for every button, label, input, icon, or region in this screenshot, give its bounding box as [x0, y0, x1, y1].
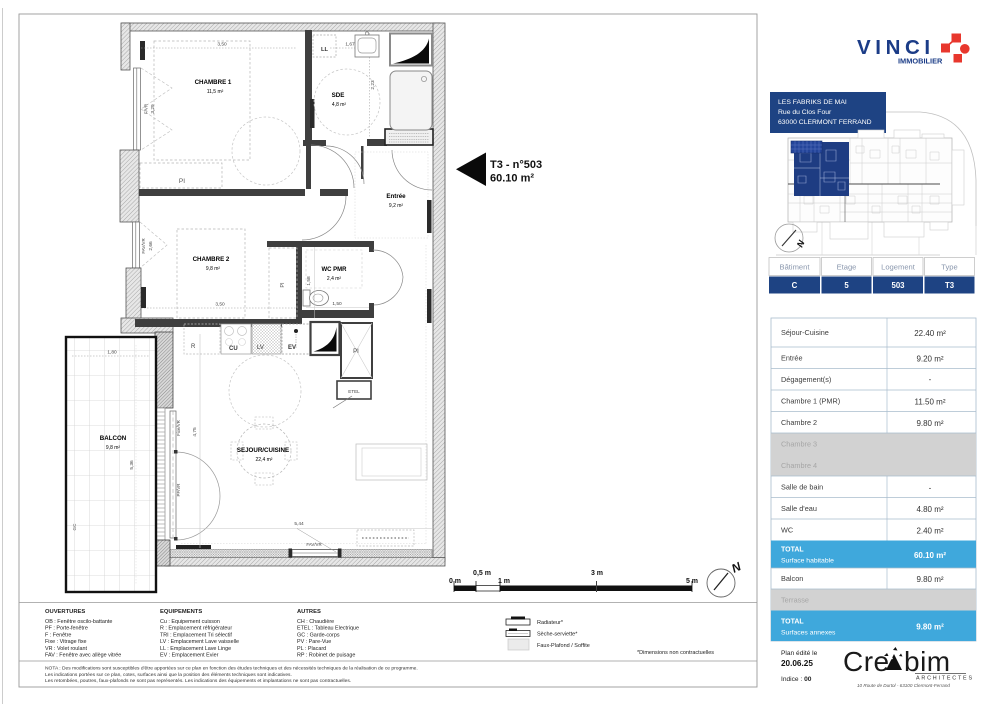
- svg-text:Les retombées, poutres, faux-p: Les retombées, poutres, faux-plafonds ne…: [45, 678, 351, 684]
- svg-text:TOTAL: TOTAL: [781, 619, 804, 626]
- svg-text:1,80: 1,80: [107, 350, 117, 356]
- svg-text:Bâtiment: Bâtiment: [780, 263, 811, 272]
- svg-text:EV: EV: [288, 345, 296, 351]
- svg-text:2.40 m²: 2.40 m²: [916, 527, 943, 536]
- svg-text:5: 5: [844, 281, 849, 290]
- svg-text:Logement: Logement: [881, 263, 916, 272]
- svg-text:Sèche-serviette*: Sèche-serviette*: [537, 632, 578, 638]
- svg-text:5,44: 5,44: [294, 521, 304, 527]
- svg-text:-: -: [929, 375, 932, 384]
- svg-text:1,58: 1,58: [306, 276, 312, 286]
- svg-text:R : Emplacement réfrigérateur: R : Emplacement réfrigérateur: [160, 626, 232, 632]
- svg-text:Surfaces annexes: Surfaces annexes: [781, 630, 836, 637]
- svg-text:Chambre 4: Chambre 4: [781, 461, 817, 470]
- svg-text:PI: PI: [353, 349, 359, 355]
- svg-text:WC PMR: WC PMR: [322, 267, 348, 273]
- svg-text:ETEL: ETEL: [348, 389, 360, 394]
- svg-text:FAV : Fenêtre avec allège vitr: FAV : Fenêtre avec allège vitrée: [45, 653, 121, 659]
- svg-text:OB : Fenêtre oscilo-battante: OB : Fenêtre oscilo-battante: [45, 619, 112, 625]
- svg-text:Radiateur*: Radiateur*: [537, 620, 564, 626]
- svg-text:ARCHITECTES: ARCHITECTES: [916, 676, 974, 682]
- svg-text:Plan édité le: Plan édité le: [781, 650, 818, 657]
- svg-text:Chambre 3: Chambre 3: [781, 440, 817, 449]
- svg-text:ETEL : Tableau Electrique: ETEL : Tableau Electrique: [297, 626, 359, 632]
- svg-text:11,5 m²: 11,5 m²: [207, 89, 224, 95]
- svg-text:9,8 m²: 9,8 m²: [206, 266, 221, 272]
- svg-text:R: R: [191, 344, 196, 350]
- svg-text:9,8 m²: 9,8 m²: [106, 445, 121, 451]
- svg-text:4.80 m²: 4.80 m²: [916, 505, 943, 514]
- svg-text:BALCON: BALCON: [100, 435, 127, 442]
- svg-text:GC : Garde-corps: GC : Garde-corps: [297, 632, 340, 638]
- svg-text:LV : Emplacement Lave vaissell: LV : Emplacement Lave vaisselle: [160, 639, 239, 645]
- svg-text:0,5 m: 0,5 m: [473, 570, 491, 577]
- svg-text:PI: PI: [280, 282, 286, 288]
- svg-text:PF : Porte-fenêtre: PF : Porte-fenêtre: [45, 626, 88, 632]
- svg-text:LES FABRIKS DE MAI: LES FABRIKS DE MAI: [778, 99, 847, 106]
- svg-text:PL : Placard: PL : Placard: [297, 646, 326, 652]
- svg-text:Fixe : Vitrage fixe: Fixe : Vitrage fixe: [45, 639, 87, 645]
- svg-text:VR : Volet roulant: VR : Volet roulant: [45, 646, 87, 652]
- svg-text:Dégagement(s): Dégagement(s): [781, 375, 831, 384]
- svg-text:PV : Pare-Vue: PV : Pare-Vue: [297, 639, 331, 645]
- svg-text:TRI : Emplacement Tri sélectif: TRI : Emplacement Tri sélectif: [160, 632, 232, 638]
- svg-text:Les indications portées sur ce: Les indications portées sur ce plan, cot…: [45, 672, 292, 678]
- svg-text:Type: Type: [941, 263, 957, 272]
- svg-text:Surface habitable: Surface habitable: [781, 558, 834, 565]
- svg-text:IMMOBILIER: IMMOBILIER: [898, 57, 943, 66]
- svg-text:3,50: 3,50: [215, 302, 225, 308]
- svg-text:Balcon: Balcon: [781, 574, 803, 583]
- svg-text:60.10 m²: 60.10 m²: [914, 551, 946, 560]
- svg-text:9.20 m²: 9.20 m²: [916, 355, 943, 364]
- svg-text:F/VR: F/VR: [144, 104, 149, 114]
- svg-text:CHAMBRE 2: CHAMBRE 2: [193, 256, 230, 263]
- svg-text:3,29: 3,29: [150, 104, 156, 114]
- svg-text:LV: LV: [257, 345, 264, 351]
- svg-text:4,8 m²: 4,8 m²: [332, 102, 347, 108]
- svg-text:Rue du Clos Four: Rue du Clos Four: [778, 109, 832, 116]
- svg-text:Indice : 00: Indice : 00: [781, 676, 812, 683]
- svg-text:10 Route de Durtol - 63100 Cle: 10 Route de Durtol - 63100 Clermont-Ferr…: [857, 683, 950, 688]
- svg-text:3 m: 3 m: [591, 570, 603, 577]
- svg-text:Cu : Equipement cuisson: Cu : Equipement cuisson: [160, 619, 220, 625]
- svg-text:9.80 m²: 9.80 m²: [916, 575, 943, 584]
- svg-text:Chambre 2: Chambre 2: [781, 418, 817, 427]
- svg-text:5 m: 5 m: [686, 578, 698, 585]
- svg-text:CH : Chaudière: CH : Chaudière: [297, 619, 334, 625]
- svg-text:9.80 m²: 9.80 m²: [916, 419, 943, 428]
- svg-text:FAV/VR: FAV/VR: [306, 542, 321, 547]
- svg-text:0 m: 0 m: [449, 578, 461, 585]
- svg-text:63000 CLERMONT FERRAND: 63000 CLERMONT FERRAND: [778, 119, 872, 126]
- svg-text:Entrée: Entrée: [781, 354, 803, 363]
- svg-text:TOTAL: TOTAL: [781, 547, 804, 554]
- svg-text:T3: T3: [945, 281, 955, 290]
- svg-text:60.10 m²: 60.10 m²: [490, 173, 534, 185]
- svg-text:CHAMBRE 1: CHAMBRE 1: [195, 79, 232, 86]
- svg-text:5,36: 5,36: [129, 460, 135, 470]
- svg-text:20.06.25: 20.06.25: [781, 659, 813, 668]
- svg-text:FAV/VR: FAV/VR: [141, 238, 146, 253]
- svg-text:Salle de bain: Salle de bain: [781, 483, 823, 492]
- svg-text:EQUIPEMENTS: EQUIPEMENTS: [160, 609, 202, 615]
- svg-text:F : Fenêtre: F : Fenêtre: [45, 632, 71, 638]
- svg-text:1,50: 1,50: [332, 301, 342, 307]
- svg-text:Faux-Plafond / Soffite: Faux-Plafond / Soffite: [537, 643, 590, 649]
- svg-text:Salle d'eau: Salle d'eau: [781, 504, 817, 513]
- svg-text:1 m: 1 m: [498, 578, 510, 585]
- svg-text:EV : Emplacement Evier: EV : Emplacement Evier: [160, 653, 219, 659]
- svg-text:Chambre 1 (PMR): Chambre 1 (PMR): [781, 397, 840, 406]
- svg-text:LL : Emplacement Lave Linge: LL : Emplacement Lave Linge: [160, 646, 231, 652]
- svg-text:RP : Robinet de puisage: RP : Robinet de puisage: [297, 653, 355, 659]
- svg-text:Séjour-Cuisine: Séjour-Cuisine: [781, 328, 829, 337]
- svg-text:Cre: Cre: [843, 646, 890, 677]
- svg-text:22,4 m²: 22,4 m²: [256, 457, 273, 463]
- svg-text:22.40 m²: 22.40 m²: [914, 329, 946, 338]
- svg-text:*Dimensions non contractuelles: *Dimensions non contractuelles: [637, 650, 714, 656]
- svg-text:SDE: SDE: [332, 92, 345, 99]
- svg-text:T3 - n°503: T3 - n°503: [490, 159, 542, 171]
- svg-text:PF/VR: PF/VR: [176, 484, 181, 497]
- svg-text:CU: CU: [229, 346, 238, 352]
- svg-text:9,2 m²: 9,2 m²: [389, 203, 404, 209]
- svg-text:GC: GC: [72, 523, 77, 531]
- svg-text:bim: bim: [904, 646, 951, 677]
- svg-text:1,67: 1,67: [345, 42, 355, 48]
- svg-text:LL: LL: [321, 47, 329, 53]
- svg-text:11.50 m²: 11.50 m²: [915, 398, 946, 407]
- svg-text:-: -: [929, 484, 932, 493]
- svg-text:503: 503: [891, 281, 905, 290]
- svg-text:WC: WC: [781, 526, 793, 535]
- svg-text:4,75: 4,75: [192, 427, 198, 437]
- svg-text:Terrasse: Terrasse: [781, 596, 809, 605]
- svg-text:2,66: 2,66: [148, 241, 154, 251]
- svg-text:C: C: [792, 281, 798, 290]
- svg-text:Etage: Etage: [837, 263, 857, 272]
- svg-text:NOTA : Des modifications sont: NOTA : Des modifications sont susceptibl…: [45, 666, 418, 672]
- svg-text:2,4 m²: 2,4 m²: [327, 276, 342, 282]
- svg-text:OUVERTURES: OUVERTURES: [45, 609, 85, 615]
- svg-text:SEJOUR/CUISINE: SEJOUR/CUISINE: [237, 447, 289, 454]
- svg-text:AUTRES: AUTRES: [297, 609, 321, 615]
- svg-text:Fixe/VR: Fixe/VR: [176, 420, 181, 436]
- svg-text:9.80 m²: 9.80 m²: [916, 623, 944, 632]
- svg-text:PI: PI: [179, 178, 185, 185]
- svg-text:3,50: 3,50: [217, 42, 227, 48]
- svg-text:Entrée: Entrée: [386, 193, 406, 200]
